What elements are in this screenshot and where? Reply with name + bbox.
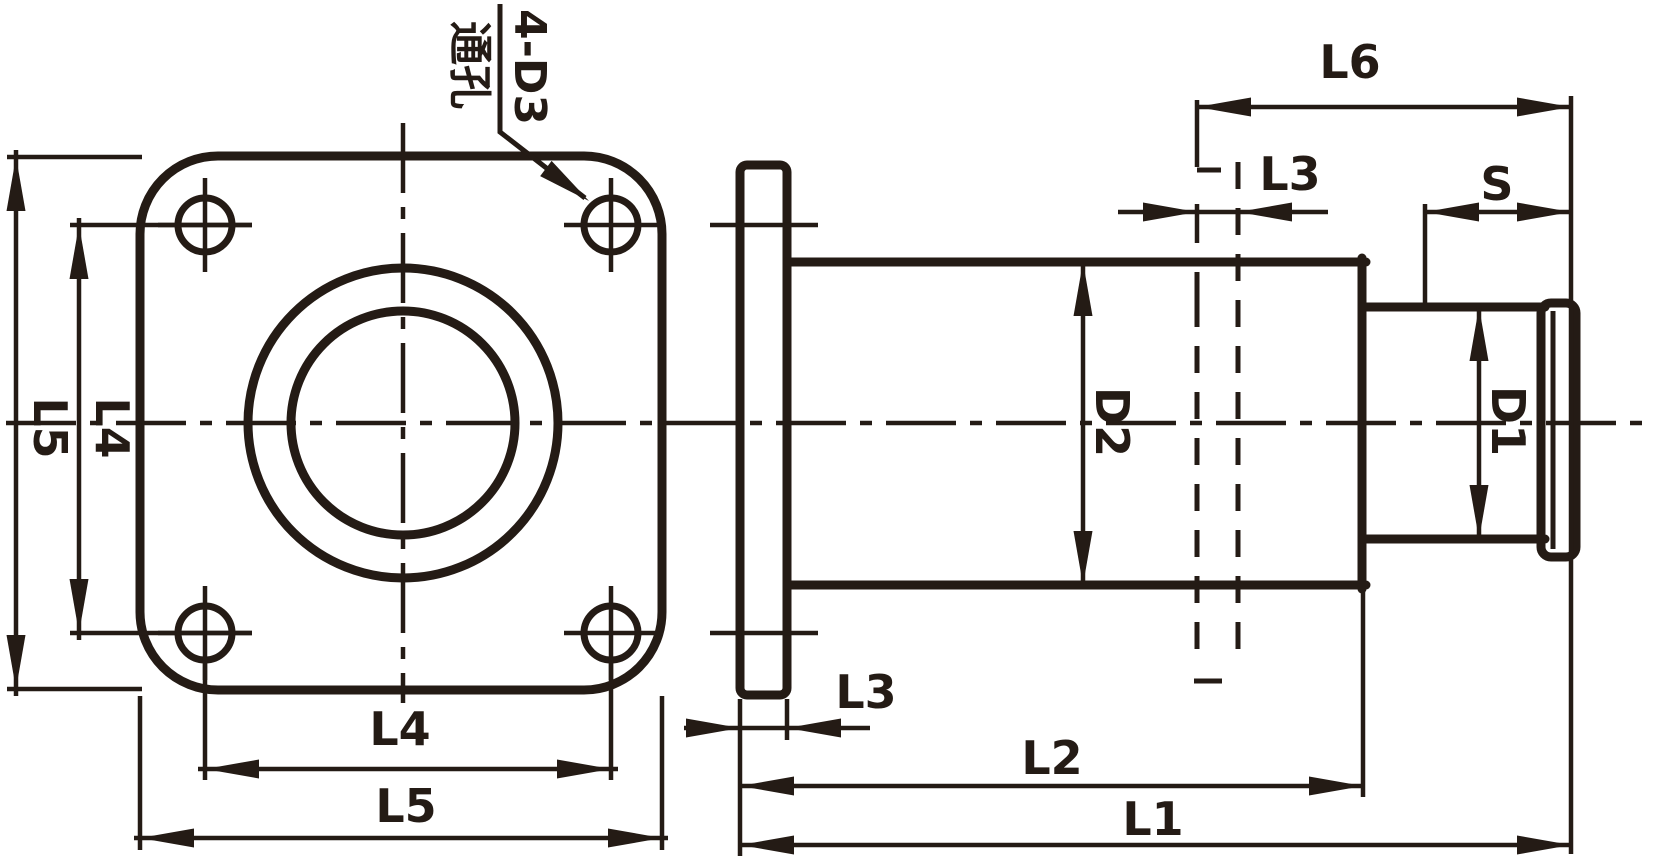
dim-arrowhead (1517, 98, 1571, 117)
dim-label-s: S (1480, 157, 1513, 211)
dim-arrowhead (7, 157, 26, 211)
hole-callout-text: 4-D3 (504, 9, 555, 125)
dim-arrowhead (1238, 203, 1292, 222)
front-view-dimensions: L5 L4 L4 L5 4-D3 通孔 (7, 4, 669, 850)
dim-label-l2: L2 (1021, 731, 1082, 785)
dim-arrowhead (1074, 262, 1093, 316)
dim-arrowhead (740, 777, 794, 796)
dim-arrowhead (140, 829, 194, 848)
dim-label-l6: L6 (1319, 35, 1380, 89)
flange-plate-outline (740, 165, 787, 695)
dim-arrowhead (205, 760, 259, 779)
dim-arrowhead (1074, 531, 1093, 585)
dim-label-l5-vertical: L5 (23, 397, 77, 458)
dim-arrowhead (70, 579, 89, 633)
dim-label-d1: D1 (1481, 386, 1535, 456)
dim-arrowhead (686, 719, 740, 738)
dim-label-l1: L1 (1122, 792, 1183, 846)
dim-label-l3-top: L3 (1259, 147, 1320, 201)
centerlines (6, 123, 1655, 703)
side-view-dimensions: L6 L3 S D2 D1 L3 L2 (684, 35, 1571, 856)
dim-arrowhead (70, 225, 89, 279)
dim-arrowhead (1517, 203, 1571, 222)
dim-arrowhead (1470, 307, 1489, 361)
technical-drawing-canvas: L5 L4 L4 L5 4-D3 通孔 (0, 0, 1661, 865)
dim-label-l4-horizontal: L4 (369, 702, 430, 756)
dim-arrowhead (1517, 836, 1571, 855)
dim-arrowhead (1197, 98, 1251, 117)
dim-arrowhead (1470, 485, 1489, 539)
dim-label-l4-vertical: L4 (85, 397, 139, 458)
dim-arrowhead (608, 829, 662, 848)
dim-label-l5-horizontal: L5 (375, 779, 436, 833)
dim-arrowhead (740, 836, 794, 855)
dim-arrowhead (7, 635, 26, 689)
hole-callout-text-cjk: 通孔 (444, 21, 495, 109)
leader-arrowhead (540, 161, 595, 209)
drawing-sheet: L5 L4 L4 L5 4-D3 通孔 (0, 0, 1661, 865)
dim-arrowhead (1143, 203, 1197, 222)
dim-label-l3-bottom: L3 (835, 665, 896, 719)
dim-arrowhead (1425, 203, 1479, 222)
dim-label-d2: D2 (1085, 387, 1139, 457)
dim-arrowhead (1309, 777, 1363, 796)
side-view (710, 162, 1576, 695)
dim-arrowhead (787, 719, 841, 738)
dim-arrowhead (557, 760, 611, 779)
hidden-feature-line-left (1194, 204, 1222, 681)
